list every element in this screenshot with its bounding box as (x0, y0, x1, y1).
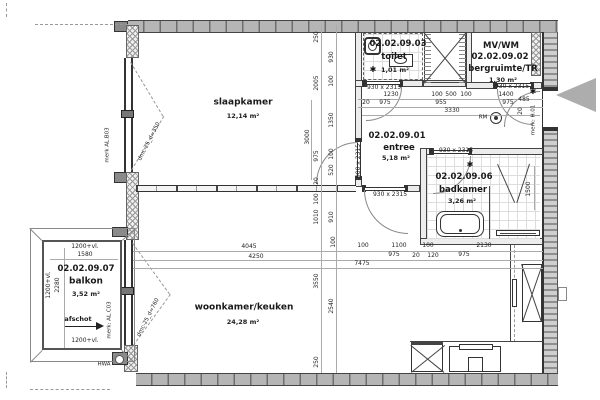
shower-divider (489, 186, 490, 239)
room-number-entree: 02.02.09.01 (368, 132, 425, 141)
dim-label: 1500 (526, 181, 532, 196)
dim-chain (336, 25, 337, 373)
dim-label: 955 (435, 100, 446, 106)
dim-label: 2130 (476, 243, 491, 249)
room-label-entree: entree (383, 144, 415, 153)
door-size-label: 930 x 2315 (367, 85, 401, 91)
room-label-bergruimte: bergruimte/TR (468, 65, 537, 74)
room-number-badkamer: 02.02.09.06 (435, 173, 492, 182)
mark-label: merk: AL.C03 (107, 301, 113, 338)
dim-label: 250 (314, 31, 320, 42)
dim-label: 930 (329, 51, 335, 62)
hwa-drain (115, 355, 124, 364)
room-label-slaapkamer: slaapkamer (213, 99, 272, 108)
dim-label: 4250 (248, 254, 263, 260)
dim-label: 520 (329, 164, 335, 175)
mark-label: dmc-25_d=760 (137, 298, 161, 338)
dim-label: 975 (458, 252, 469, 258)
boundary-dashed-line (30, 389, 110, 390)
room-area-balkon: 3,52 m² (72, 291, 100, 298)
smoke-detector-dot (494, 116, 498, 120)
dim-label: 4045 (241, 244, 256, 250)
room-label-woonkamer: woonkamer/keuken (195, 304, 294, 313)
appliance-handle (512, 279, 517, 307)
shower-drain-line (500, 233, 536, 234)
dim-label: 250 (314, 356, 320, 367)
star-symbol: ✱ (530, 88, 537, 96)
room-number-bergruimte: 02.02.09.02 (471, 53, 528, 62)
mark-label: HWA (97, 362, 110, 368)
room-area-entree: 5,18 m² (382, 155, 410, 162)
appliance-top (411, 341, 443, 345)
dim-label: 485 (518, 97, 529, 103)
window-swing-line (130, 62, 163, 117)
room-label-mvwm: MV/WM (483, 42, 519, 51)
afschot-arrow-line (64, 326, 96, 327)
dim-line (133, 251, 543, 252)
dim-label: 2280 (55, 277, 61, 292)
dim-label: 3000 (305, 129, 311, 144)
kitchen-sink-bowl (468, 357, 483, 372)
dim-label: 100 (329, 148, 335, 159)
wall-vent (558, 287, 567, 301)
dim-line (133, 268, 543, 269)
door-size-label: 930 x 2315 (373, 192, 407, 198)
dim-label: 1010 (314, 209, 320, 224)
dim-label: 2005 (314, 75, 320, 90)
dim-label: 3550 (314, 273, 320, 288)
dim-label: 1200+vl. (71, 244, 98, 250)
dim-label: 120 (427, 253, 438, 259)
dim-label: 100 (422, 243, 433, 249)
dim-label: 975 (502, 100, 513, 106)
room-label-badkamer: badkamer (439, 186, 487, 195)
room-area-slaapkamer: 12,14 m² (227, 113, 259, 120)
entry-direction-marker (556, 78, 596, 112)
dim-label: 20 (518, 107, 524, 115)
dim-label: 1400 (498, 92, 513, 98)
star-symbol: ✱ (467, 161, 474, 169)
south-exterior-wall (136, 373, 558, 386)
toilet-wall (401, 80, 423, 87)
dim-label: 1580 (77, 252, 92, 258)
room-number-toilet: 02.02.09.03 (369, 40, 426, 49)
dim-label: 7475 (354, 261, 369, 267)
dim-label: 20 (412, 253, 420, 259)
boundary-dashed-line (35, 24, 128, 25)
dim-label: 500 (445, 92, 456, 98)
dim-label: 1230 (383, 92, 398, 98)
dim-label: 2540 (329, 298, 335, 313)
dim-label: 100 (357, 243, 368, 249)
grid-mark (6, 372, 7, 388)
dim-label: 20 (362, 100, 370, 106)
mark-label: merk: H.01 (531, 105, 537, 136)
bathroom-wall (470, 148, 543, 155)
dim-label: 100 (331, 236, 337, 247)
mark-label: dmc-25_d=350 (138, 122, 162, 162)
door-size-label: 900 x 2315 (356, 144, 362, 178)
grid-mark (6, 3, 7, 17)
room-label-toilet: toilet (381, 53, 407, 62)
floor-plan-canvas: slaapkamer 12,14 m² 02.02.09.03 toilet 1… (0, 0, 600, 400)
bedroom-door-swing (316, 142, 358, 184)
bathroom-wall (420, 148, 427, 245)
dim-label: 975 (379, 100, 390, 106)
front-door-jamb (542, 127, 558, 131)
dim-label: 20 (314, 177, 320, 185)
dim-label: 975 (388, 252, 399, 258)
dim-label: 100 (431, 92, 442, 98)
wall-insulation (126, 25, 139, 58)
dim-label: 1200+vl. (71, 338, 98, 344)
mark-label: RM (479, 115, 488, 121)
mark-label: merk AL.B03 (105, 127, 111, 162)
north-exterior-wall (128, 20, 558, 33)
door-size-label: 930 x 2315 (495, 84, 529, 90)
dim-chain (321, 25, 322, 373)
dim-line (50, 259, 118, 260)
dim-label: 100 (460, 92, 471, 98)
dim-label: 1200+vl. (46, 271, 52, 298)
room-label-balkon: balkon (69, 278, 103, 287)
hall-wall-stub (407, 185, 420, 192)
room-area-woonkamer: 24,28 m² (227, 319, 259, 326)
dim-label: 1100 (391, 243, 406, 249)
afschot-arrowhead (96, 322, 104, 330)
kitchen-sink-back (459, 344, 493, 350)
star-symbol: ✱ (370, 66, 377, 74)
dim-line (362, 115, 540, 116)
dim-label: 100 (314, 193, 320, 204)
room-number-balkon: 02.02.09.07 (57, 265, 114, 274)
dim-label: 975 (314, 150, 320, 161)
room-area-toilet: 1,01 m² (381, 67, 409, 74)
dim-label: 100 (329, 75, 335, 86)
annotation-label: afschot (64, 316, 91, 323)
bedroom-hall-wall (355, 32, 362, 142)
bathtub-drain (459, 229, 462, 232)
dim-line (534, 166, 535, 210)
dim-chain (311, 100, 312, 180)
window-mullion (121, 110, 134, 118)
room-area-badkamer: 3,26 m² (448, 198, 476, 205)
dim-line (133, 260, 543, 261)
dim-label: 1350 (329, 112, 335, 127)
dim-label: 3330 (444, 108, 459, 114)
door-size-label: 930 x 2315 (439, 148, 473, 154)
dim-label: 910 (329, 211, 335, 222)
bedroom-living-wall (136, 185, 356, 192)
